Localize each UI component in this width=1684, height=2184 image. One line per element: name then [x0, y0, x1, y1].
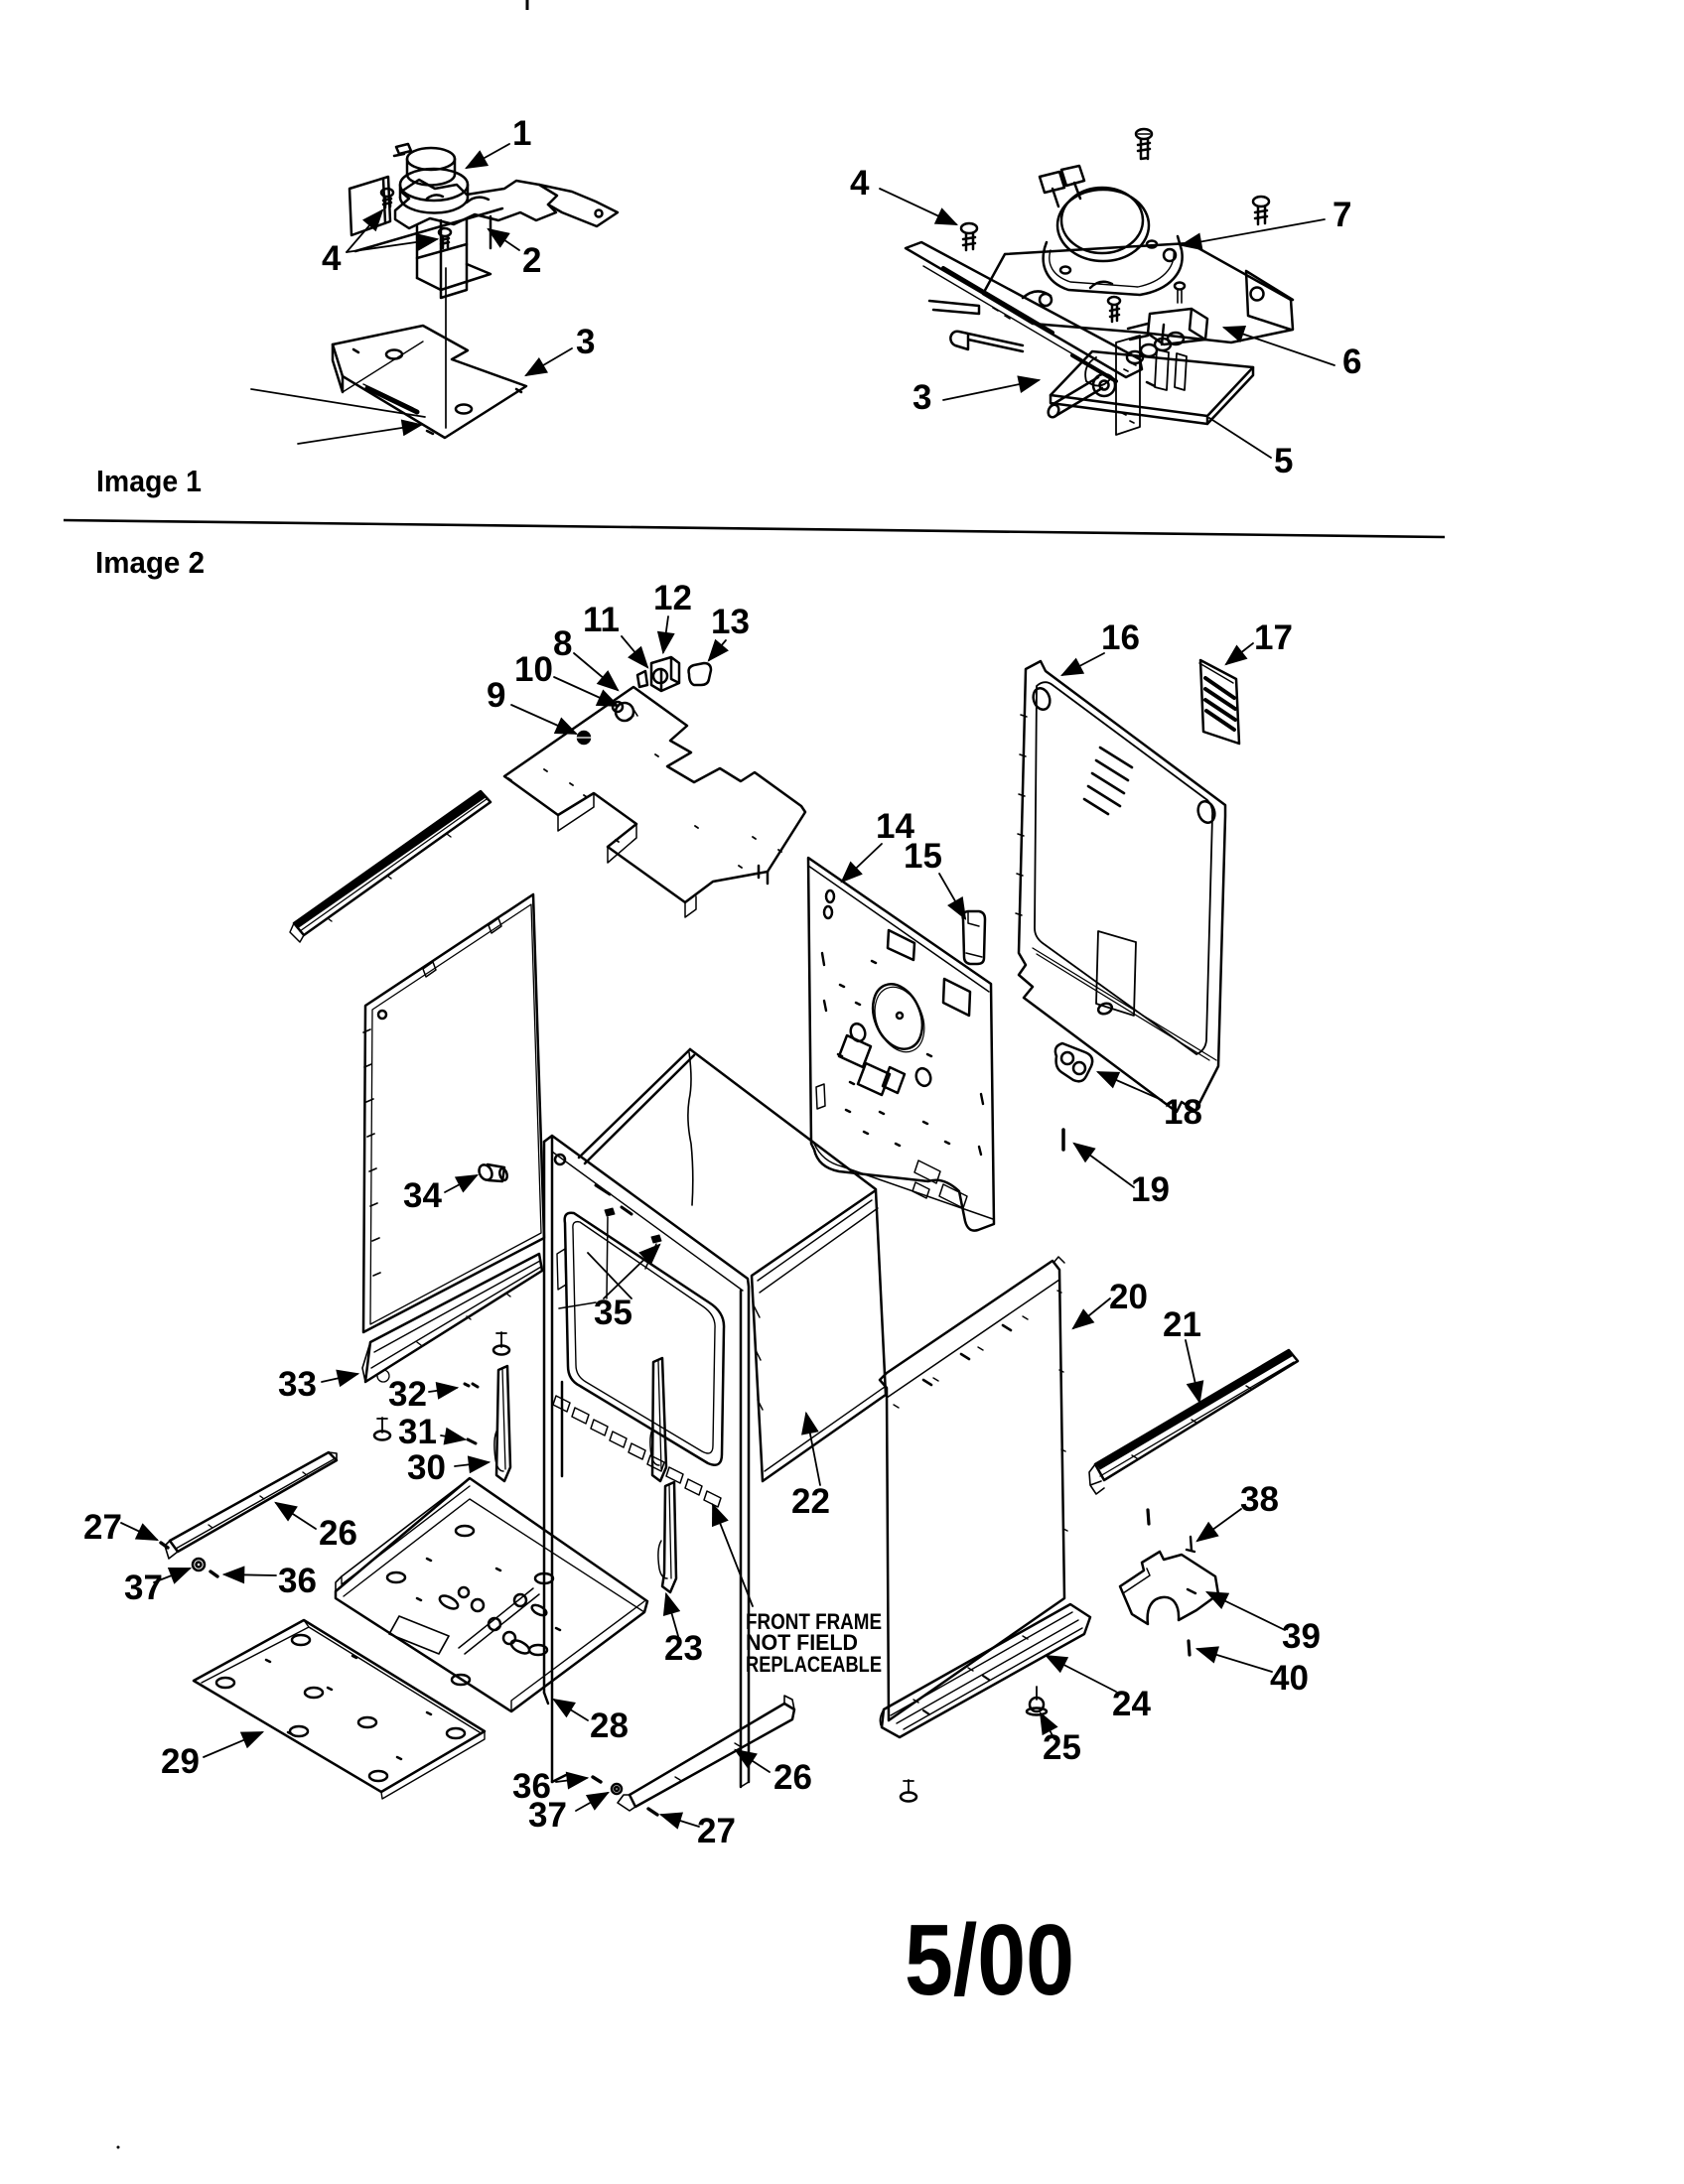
svg-text:23: 23	[664, 1629, 703, 1668]
svg-text:24: 24	[1112, 1685, 1151, 1723]
svg-text:37: 37	[124, 1569, 163, 1607]
svg-text:5: 5	[1274, 442, 1293, 480]
svg-text:4: 4	[322, 239, 342, 278]
svg-text:37: 37	[528, 1796, 567, 1835]
svg-text:19: 19	[1131, 1170, 1170, 1209]
svg-text:1: 1	[512, 114, 531, 153]
svg-text:26: 26	[773, 1758, 812, 1797]
svg-text:REPLACEABLE: REPLACEABLE	[746, 1652, 882, 1677]
svg-text:3: 3	[576, 323, 595, 361]
svg-text:26: 26	[319, 1514, 357, 1553]
svg-text:10: 10	[514, 650, 553, 689]
svg-text:12: 12	[653, 579, 692, 617]
svg-text:Image 2: Image 2	[95, 545, 205, 580]
svg-text:32: 32	[388, 1375, 427, 1414]
svg-text:30: 30	[407, 1448, 446, 1487]
svg-text:3: 3	[912, 378, 931, 417]
svg-text:40: 40	[1270, 1659, 1309, 1698]
svg-text:8: 8	[553, 624, 572, 663]
svg-text:13: 13	[711, 603, 750, 641]
svg-text:Image 1: Image 1	[96, 464, 202, 498]
svg-text:27: 27	[83, 1508, 122, 1547]
svg-text:27: 27	[697, 1812, 736, 1850]
svg-text:6: 6	[1342, 342, 1361, 381]
svg-text:38: 38	[1240, 1480, 1279, 1519]
svg-text:33: 33	[278, 1365, 317, 1404]
svg-text:21: 21	[1163, 1305, 1201, 1344]
svg-text:5/00: 5/00	[905, 1905, 1074, 2016]
svg-text:4: 4	[850, 164, 870, 203]
svg-text:15: 15	[904, 837, 942, 876]
svg-text:11: 11	[583, 601, 620, 639]
svg-text:31: 31	[398, 1413, 437, 1451]
svg-text:18: 18	[1164, 1093, 1202, 1132]
svg-text:36: 36	[278, 1562, 317, 1600]
svg-text:39: 39	[1282, 1617, 1321, 1656]
svg-text:35: 35	[594, 1294, 632, 1332]
svg-text:16: 16	[1101, 618, 1140, 657]
svg-text:22: 22	[791, 1482, 830, 1521]
svg-text:34: 34	[403, 1176, 442, 1215]
svg-text:9: 9	[487, 676, 505, 715]
svg-text:20: 20	[1109, 1278, 1148, 1316]
svg-text:17: 17	[1254, 618, 1293, 657]
svg-text:28: 28	[590, 1706, 629, 1745]
svg-text:29: 29	[161, 1742, 200, 1781]
svg-text:25: 25	[1043, 1728, 1081, 1767]
svg-text:7: 7	[1333, 196, 1351, 234]
svg-text:2: 2	[522, 241, 541, 280]
